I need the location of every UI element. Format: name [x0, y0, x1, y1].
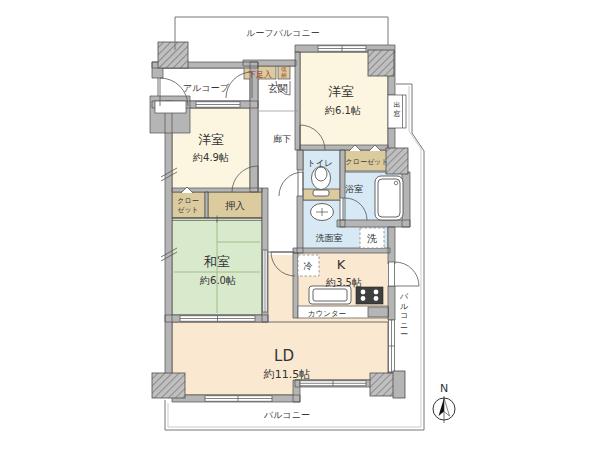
- kitchen-name: K: [337, 257, 346, 272]
- counter-wall-stub: [368, 307, 388, 317]
- roof-balcony-label: ルーフバルコニー: [246, 28, 319, 38]
- bath-label: 浴室: [345, 184, 363, 194]
- balcony-side-label: バルコニー: [399, 292, 409, 339]
- japanese-room-name: 和室: [203, 254, 230, 269]
- refrigerator-label: 冷: [304, 261, 313, 271]
- toilet-bowl: [315, 167, 327, 181]
- corridor-label: 廊下: [273, 134, 291, 144]
- balcony-door-opening: [389, 262, 395, 286]
- toilet-base: [313, 190, 329, 196]
- living-dining-name: LD: [274, 347, 294, 365]
- pillar-bottom-right: [370, 373, 395, 396]
- bedroom2-size: 約4.9帖: [192, 152, 229, 163]
- stove: [356, 287, 383, 304]
- bay-window-label: 出窓: [394, 101, 401, 118]
- pillar-bottom-right-stub: [393, 371, 405, 398]
- kitchen-size: 約3.5帖: [325, 277, 362, 288]
- entrance-label: 玄関: [268, 83, 288, 94]
- living-dining-size: 約11.5帖: [263, 368, 311, 381]
- pillar-bottom-left: [152, 373, 185, 398]
- pillar-top-right: [368, 50, 394, 76]
- stove-burner: [361, 296, 366, 301]
- balcony-bottom-label: バルコニー: [263, 410, 310, 420]
- balcony-door-swing: [395, 262, 419, 286]
- pillar-bath: [386, 148, 408, 174]
- bedroom1-name: 洋室: [328, 84, 354, 99]
- bedroom2-name: 洋室: [198, 132, 224, 147]
- counter-label: カウンター: [308, 309, 346, 318]
- kitchen-sink-inner: [313, 289, 347, 301]
- stove-burner: [374, 296, 379, 301]
- washroom-label: 洗面室: [316, 233, 343, 243]
- shoe-cabinet-label: 下足入: [248, 70, 272, 79]
- floorplan-image: N ルーフバルコニー アルコーブ 下足入 収納 玄関 洋室 約6.1帖 出窓 廊…: [0, 0, 600, 450]
- closet-bath-side-label: クローゼット: [346, 158, 389, 166]
- closet-west-label-1: クロー: [177, 197, 198, 205]
- storage-label: 収納: [281, 66, 287, 78]
- bedroom1-size: 約6.1帖: [324, 105, 361, 116]
- oshiire-label: 押入: [225, 200, 245, 211]
- stove-burner: [361, 290, 366, 295]
- closet-west-box: [172, 192, 205, 218]
- stove-burner: [374, 290, 379, 295]
- compass-north-label: N: [440, 382, 448, 395]
- japanese-room-size: 約6.0帖: [199, 275, 236, 286]
- pillar-top-left: [158, 42, 188, 68]
- toilet-label: トイレ: [307, 158, 333, 168]
- compass: N: [433, 382, 455, 423]
- closet-west-label-2: ゼット: [177, 206, 199, 214]
- floorplan-svg: N ルーフバルコニー アルコーブ 下足入 収納 玄関 洋室 約6.1帖 出窓 廊…: [0, 0, 600, 450]
- laundry-label: 洗: [367, 233, 377, 244]
- alcove-label: アルコーブ: [183, 83, 230, 93]
